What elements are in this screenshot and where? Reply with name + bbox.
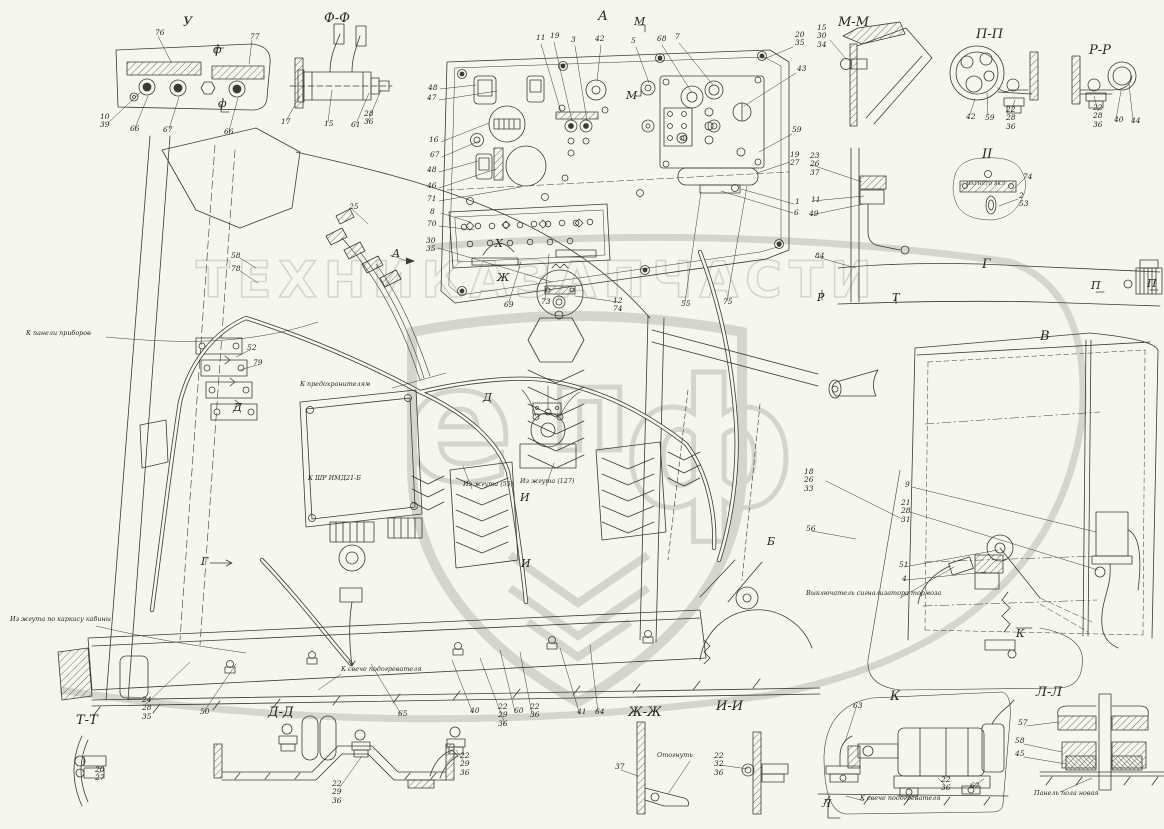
callout-17: 17 bbox=[281, 118, 291, 126]
section-ff-drawing bbox=[286, 24, 392, 124]
callout-40: 40 bbox=[1114, 116, 1124, 124]
panel-right-subpanel bbox=[660, 76, 764, 168]
section-title-l-l: Л-Л bbox=[1036, 686, 1062, 701]
callout-79: 79 bbox=[253, 359, 263, 367]
callout-77: 77 bbox=[250, 33, 260, 41]
note-floor-panel-new: Панель пола новая bbox=[1034, 790, 1099, 797]
callout-52: 52 bbox=[247, 344, 257, 352]
callout-55: 55 bbox=[681, 300, 691, 308]
callout-43: 43 bbox=[797, 65, 807, 73]
cut-marker-m-bottom: М bbox=[626, 90, 637, 102]
callout-47: 47 bbox=[427, 94, 437, 102]
detail-ii-drawing bbox=[953, 158, 1026, 220]
watermark-letter-e: е bbox=[405, 331, 514, 518]
callout-58: 58 bbox=[231, 252, 241, 260]
cut-marker-r: Р bbox=[817, 292, 824, 304]
note-to-heater-plug-1: К свече подогревателя bbox=[341, 666, 421, 673]
section-ll-drawing bbox=[1024, 694, 1164, 792]
cut-marker-p-2: П bbox=[1147, 278, 1157, 290]
callout-45: 45 bbox=[1015, 750, 1025, 758]
callout-19: 19 bbox=[550, 32, 560, 40]
panel-lamp-assembly bbox=[678, 168, 758, 193]
callout-70: 70 bbox=[427, 220, 437, 228]
callout-11: 11 bbox=[536, 34, 546, 42]
section-title-zh-zh: Ж-Ж bbox=[628, 706, 662, 721]
section-title-f-f: Ф-Ф bbox=[324, 12, 350, 27]
callout-7: 7 bbox=[675, 33, 680, 41]
callout-78: 78 bbox=[231, 265, 241, 273]
callout-64: 64 bbox=[595, 708, 605, 716]
section-pp-drawing bbox=[950, 46, 1038, 115]
callout-62: 62 bbox=[970, 782, 980, 790]
callout-23-26-37: 23 26 37 bbox=[810, 152, 820, 177]
callout-15-30-34: 15 30 34 bbox=[817, 24, 827, 49]
view-title-u: У bbox=[183, 16, 192, 31]
cut-marker-x: Х bbox=[495, 238, 503, 250]
callout-44: 44 bbox=[1131, 117, 1141, 125]
callout-46: 46 bbox=[427, 182, 437, 190]
callout-24-28-35: 24 28 35 bbox=[142, 696, 152, 721]
callout-22-28-36: 22 28 36 bbox=[1006, 106, 1016, 131]
callout-25: 25 bbox=[349, 203, 359, 211]
callout-6: 6 bbox=[794, 209, 799, 217]
callout-59: 59 bbox=[792, 126, 802, 134]
callout-84: 84 bbox=[815, 252, 825, 260]
callout-28-36: 28 36 bbox=[364, 110, 374, 127]
callout-22-36: 22 36 bbox=[530, 703, 540, 720]
note-to-fuses: К предохранителям bbox=[300, 381, 370, 388]
view-arrow-g: Г bbox=[201, 556, 208, 568]
callout-40: 40 bbox=[470, 707, 480, 715]
section-jj-drawing bbox=[621, 722, 690, 814]
view-v-drawing bbox=[829, 333, 1158, 648]
callout-56: 56 bbox=[806, 525, 816, 533]
watermark-letter-p: п bbox=[550, 344, 629, 478]
callout-42: 42 bbox=[966, 113, 976, 121]
callout-67: 67 bbox=[163, 126, 173, 134]
cut-marker-p-1: П bbox=[1091, 280, 1101, 292]
callout-66: 66 bbox=[130, 125, 140, 133]
view-marker-b: Б bbox=[767, 536, 775, 548]
section-title-i-i: И-И bbox=[716, 700, 743, 715]
view-title-k: К bbox=[890, 690, 900, 705]
callout-16: 16 bbox=[429, 136, 439, 144]
section-title-r-r: Р-Р bbox=[1089, 44, 1111, 59]
callout-2-53: 2 53 bbox=[1019, 192, 1029, 209]
callout-19-27: 19 27 bbox=[790, 151, 800, 168]
horn-drawing bbox=[832, 370, 878, 396]
callout-74: 74 bbox=[1023, 173, 1033, 181]
note-to-heater-plug-2: К свече подогревателя bbox=[860, 795, 940, 802]
callout-76: 76 bbox=[155, 29, 165, 37]
watermark-letter-f: ф bbox=[622, 344, 796, 547]
callout-48: 48 bbox=[428, 84, 438, 92]
callout-15: 15 bbox=[324, 120, 334, 128]
callout-20-27: 20 27 bbox=[95, 766, 105, 783]
callout-49: 49 bbox=[809, 210, 819, 218]
cut-marker-l: Л bbox=[822, 798, 831, 810]
callout-22-29-36: 22 29 36 bbox=[498, 703, 508, 728]
callout-75: 75 bbox=[723, 298, 733, 306]
diagram-art: ТЕХНИКА ЗАПЧАСТИ е п ф bbox=[0, 0, 1164, 829]
callout-57: 57 bbox=[1018, 719, 1028, 727]
section-mm-drawing bbox=[830, 22, 932, 126]
callout-42: 42 bbox=[595, 35, 605, 43]
cut-marker-f-top: ф bbox=[213, 44, 222, 56]
callout-37: 37 bbox=[615, 763, 625, 771]
cut-marker-d-1: Д bbox=[233, 402, 242, 414]
callout-21-28-31: 21 28 31 bbox=[901, 499, 911, 524]
view-b-brake-drawing bbox=[812, 470, 1092, 690]
plate-magneto: МАГНЕТО ВКЛ bbox=[966, 183, 1005, 188]
note-bend-away: Отогнуть bbox=[657, 752, 693, 759]
callout-66: 66 bbox=[224, 128, 234, 136]
view-u-drawing bbox=[108, 36, 270, 131]
callout-11: 11 bbox=[811, 196, 821, 204]
section-dd-drawing bbox=[214, 716, 465, 788]
note-from-harness-55: Из жгута (55) bbox=[463, 481, 513, 488]
cut-marker-i-1: И bbox=[520, 492, 530, 504]
cut-marker-m-top: М bbox=[634, 16, 645, 28]
callout-51: 51 bbox=[899, 561, 909, 569]
callout-18-26-33: 18 26 33 bbox=[804, 468, 814, 493]
view-arrow-k: К bbox=[1016, 628, 1025, 640]
callout-5: 5 bbox=[631, 37, 636, 45]
callout-22-32-36: 22 32 36 bbox=[714, 752, 724, 777]
view-title-a: А bbox=[598, 10, 608, 25]
section-rr-drawing bbox=[1072, 56, 1136, 120]
callout-58: 58 bbox=[1015, 737, 1025, 745]
note-to-instrument-panel: К панели приборов bbox=[26, 330, 91, 337]
note-from-harness-127: Из жгута (127) bbox=[520, 478, 574, 485]
callout-8: 8 bbox=[430, 208, 435, 216]
callout-71: 71 bbox=[427, 195, 437, 203]
note-harness-cab-frame: Из жгута по каркасу кабины bbox=[10, 616, 111, 623]
callout-50: 50 bbox=[200, 708, 210, 716]
callout-67: 67 bbox=[430, 151, 440, 159]
callout-69: 69 bbox=[504, 301, 514, 309]
cut-marker-i-2: И bbox=[521, 558, 531, 570]
detail-title-ii: II bbox=[982, 148, 992, 163]
callout-48: 48 bbox=[427, 166, 437, 174]
callout-9: 9 bbox=[905, 481, 910, 489]
callout-61: 61 bbox=[351, 121, 361, 129]
callout-1: 1 bbox=[795, 198, 800, 206]
note-brake-signal-switch: Выключатель сигнализатора тормоза bbox=[806, 590, 941, 597]
callout-22-36: 22 36 bbox=[941, 776, 951, 793]
section-ii2-drawing bbox=[720, 732, 788, 814]
view-title-v: В bbox=[1040, 330, 1050, 345]
callout-41: 41 bbox=[577, 708, 587, 716]
section-title-t-t: Т-Т bbox=[76, 714, 98, 729]
cut-marker-t: Т bbox=[892, 292, 899, 304]
watermark-word-1: ТЕХНИКА bbox=[196, 251, 515, 309]
section-title-m-m: М-М bbox=[838, 16, 869, 31]
callout-20-35: 20 35 bbox=[795, 31, 805, 48]
callout-22-29-36: 22 29 36 bbox=[460, 752, 470, 777]
callout-12-74: 12 74 bbox=[613, 297, 623, 314]
callout-65: 65 bbox=[398, 710, 408, 718]
callout-10-39: 10 39 bbox=[100, 113, 110, 130]
section-title-p-p: П-П bbox=[976, 28, 1003, 43]
section-title-d-d: Д-Д bbox=[268, 706, 294, 721]
callout-22-29-36: 22 29 36 bbox=[332, 780, 342, 805]
callout-3: 3 bbox=[571, 36, 576, 44]
callout-4: 4 bbox=[902, 575, 907, 583]
cut-marker-f-bottom: ф bbox=[218, 98, 227, 110]
cut-marker-zh: Ж bbox=[497, 272, 509, 284]
note-to-shr-imd21b: К ШР ИМД21-Б bbox=[308, 475, 361, 482]
callout-68: 68 bbox=[657, 35, 667, 43]
view-arrow-a: А bbox=[392, 248, 400, 260]
callout-73: 73 bbox=[541, 298, 551, 306]
cut-marker-d-2: Д bbox=[483, 392, 492, 404]
callout-63: 63 bbox=[853, 702, 863, 710]
callout-60: 60 bbox=[514, 707, 524, 715]
callout-30-35: 30 35 bbox=[426, 237, 436, 254]
view-title-g: Г bbox=[982, 258, 991, 273]
callout-59: 59 bbox=[985, 114, 995, 122]
panel-gauges bbox=[471, 76, 724, 186]
drawing-canvas: ТЕХНИКА ЗАПЧАСТИ е п ф bbox=[0, 0, 1164, 829]
callout-22-28-36: 22 28 36 bbox=[1093, 104, 1103, 129]
